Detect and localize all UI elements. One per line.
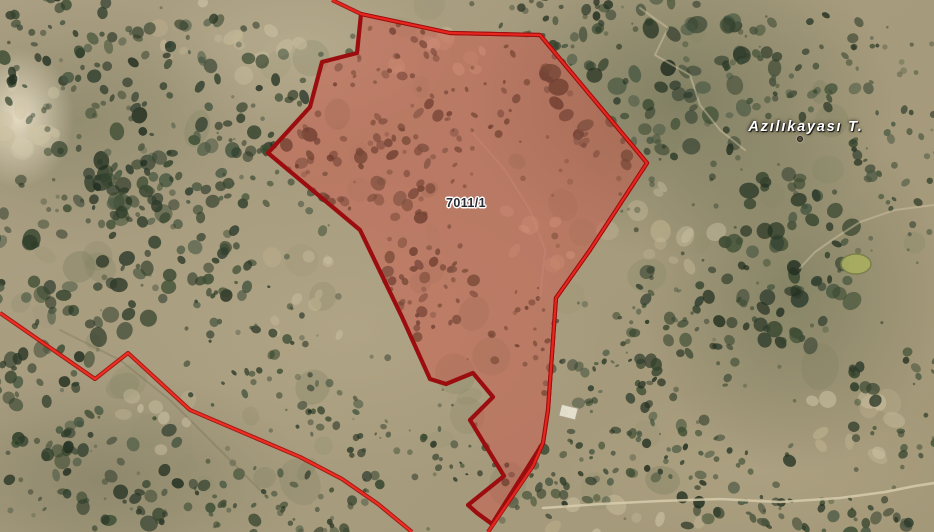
adjacent-parcel-boundary-line — [0, 313, 412, 532]
adjacent-parcel-boundary-line-casing — [0, 313, 412, 532]
peak-marker-icon — [797, 136, 803, 142]
parcel-polygon[interactable] — [268, 14, 647, 524]
map-viewport[interactable]: 7011/1 Azılıkayası T. — [0, 0, 934, 532]
parcel-overlay-layer — [0, 0, 934, 532]
